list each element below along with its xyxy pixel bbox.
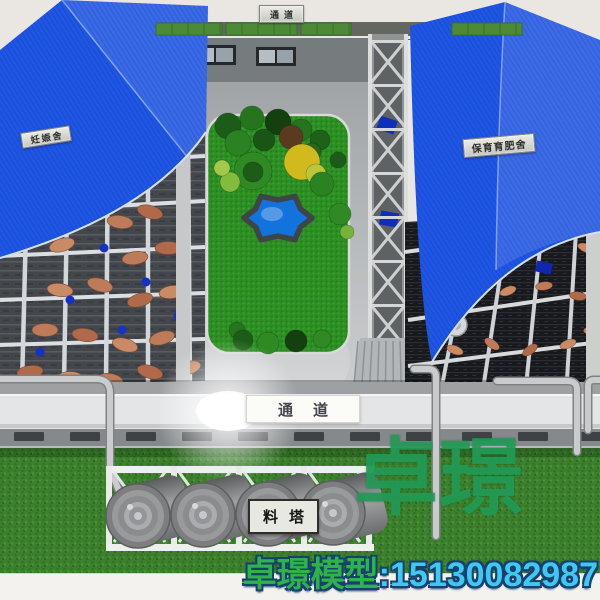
caption-phone: :15130082987 — [379, 556, 598, 594]
back-wall-window — [256, 47, 296, 66]
feed-tower-sign: 料塔 — [248, 499, 319, 534]
top-passage-sign: 通道 — [259, 5, 304, 23]
watermark-text: 卓璟 — [354, 436, 524, 520]
model-photo: 通道 妊娠舍 保育育肥舍 通道 料塔 卓璟 卓璟模型:15130082987 — [0, 0, 600, 600]
caption-brand: 卓璟模型 — [243, 556, 379, 594]
courtyard-garden — [207, 106, 354, 354]
caption: 卓璟模型:15130082987 — [243, 547, 598, 596]
corridor-passage-sign: 通道 — [246, 395, 360, 423]
hedge-row — [156, 23, 522, 35]
